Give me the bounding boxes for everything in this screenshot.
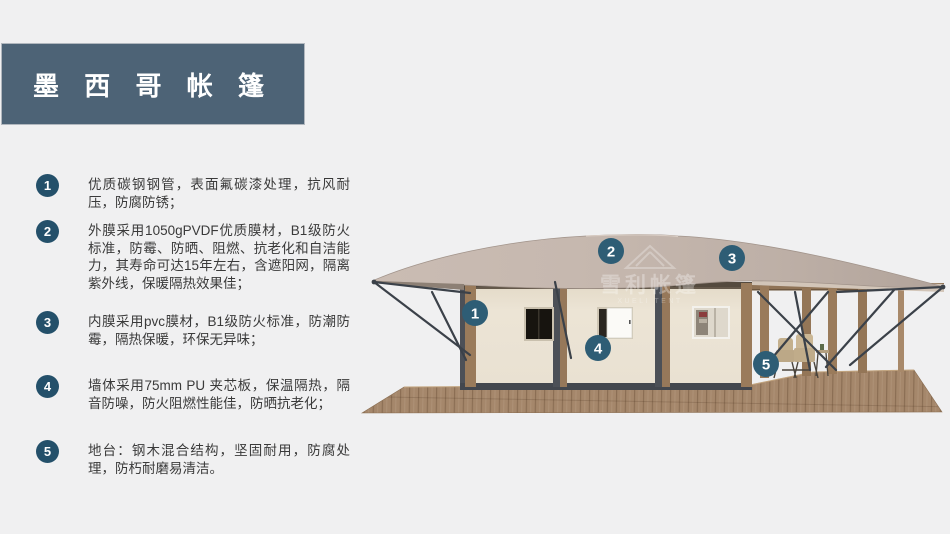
window-door bbox=[597, 307, 633, 339]
watermark-text-cn: 雪利帐篷 bbox=[600, 273, 700, 297]
number-badge: 5 bbox=[36, 440, 59, 463]
watermark-text-en: XUELI TENT bbox=[617, 298, 682, 305]
porch-post bbox=[898, 290, 904, 372]
feature-list: 1 优质碳钢钢管，表面氟碳漆处理，抗风耐压，防腐防锈； 2 外膜采用1050gP… bbox=[36, 0, 352, 534]
feature-text: 内膜采用pvc膜材，B1级防火标准，防潮防霉，隔热保暖，环保无异味； bbox=[88, 313, 350, 348]
strut-anchor bbox=[941, 285, 946, 290]
marker-5: 5 bbox=[753, 351, 779, 377]
marker-1: 1 bbox=[462, 300, 488, 326]
svg-text:4: 4 bbox=[594, 340, 603, 357]
svg-text:2: 2 bbox=[607, 243, 615, 260]
marker-2: 2 bbox=[598, 238, 624, 264]
feature-text: 墙体采用75mm PU 夹芯板，保温隔热，隔音防噪，防火阻燃性能佳，防晒抗老化； bbox=[88, 377, 350, 412]
window-interior bbox=[692, 306, 730, 339]
cabin-base bbox=[460, 383, 752, 390]
wood-post bbox=[465, 283, 476, 387]
svg-text:5: 5 bbox=[762, 356, 770, 373]
number-badge: 3 bbox=[36, 311, 59, 334]
wood-post bbox=[741, 283, 752, 387]
svg-text:1: 1 bbox=[471, 305, 479, 322]
tent-svg: 雪利帐篷 XUELI TENT 1 2 3 4 bbox=[358, 220, 948, 420]
feature-text: 外膜采用1050gPVDF优质膜材，B1级防火标准，防霉、防晒、阻燃、抗老化和自… bbox=[88, 222, 350, 292]
porch bbox=[752, 283, 944, 378]
feature-text: 优质碳钢钢管，表面氟碳漆处理，抗风耐压，防腐防锈； bbox=[88, 176, 350, 211]
marker-3: 3 bbox=[719, 245, 745, 271]
marker-4: 4 bbox=[585, 335, 611, 361]
cabin bbox=[460, 282, 752, 390]
tent-illustration: 雪利帐篷 XUELI TENT 1 2 3 4 bbox=[358, 220, 948, 420]
number-badge: 2 bbox=[36, 220, 59, 243]
strut-anchor bbox=[372, 280, 377, 285]
svg-text:3: 3 bbox=[728, 250, 736, 267]
number-badge: 1 bbox=[36, 174, 59, 197]
slide: 墨 西 哥 帐 篷 1 优质碳钢钢管，表面氟碳漆处理，抗风耐压，防腐防锈； 2 … bbox=[0, 0, 950, 534]
window-dark bbox=[524, 307, 554, 341]
feature-text: 地台：钢木混合结构，坚固耐用，防腐处理，防朽耐磨易清洁。 bbox=[88, 442, 350, 477]
number-badge: 4 bbox=[36, 375, 59, 398]
